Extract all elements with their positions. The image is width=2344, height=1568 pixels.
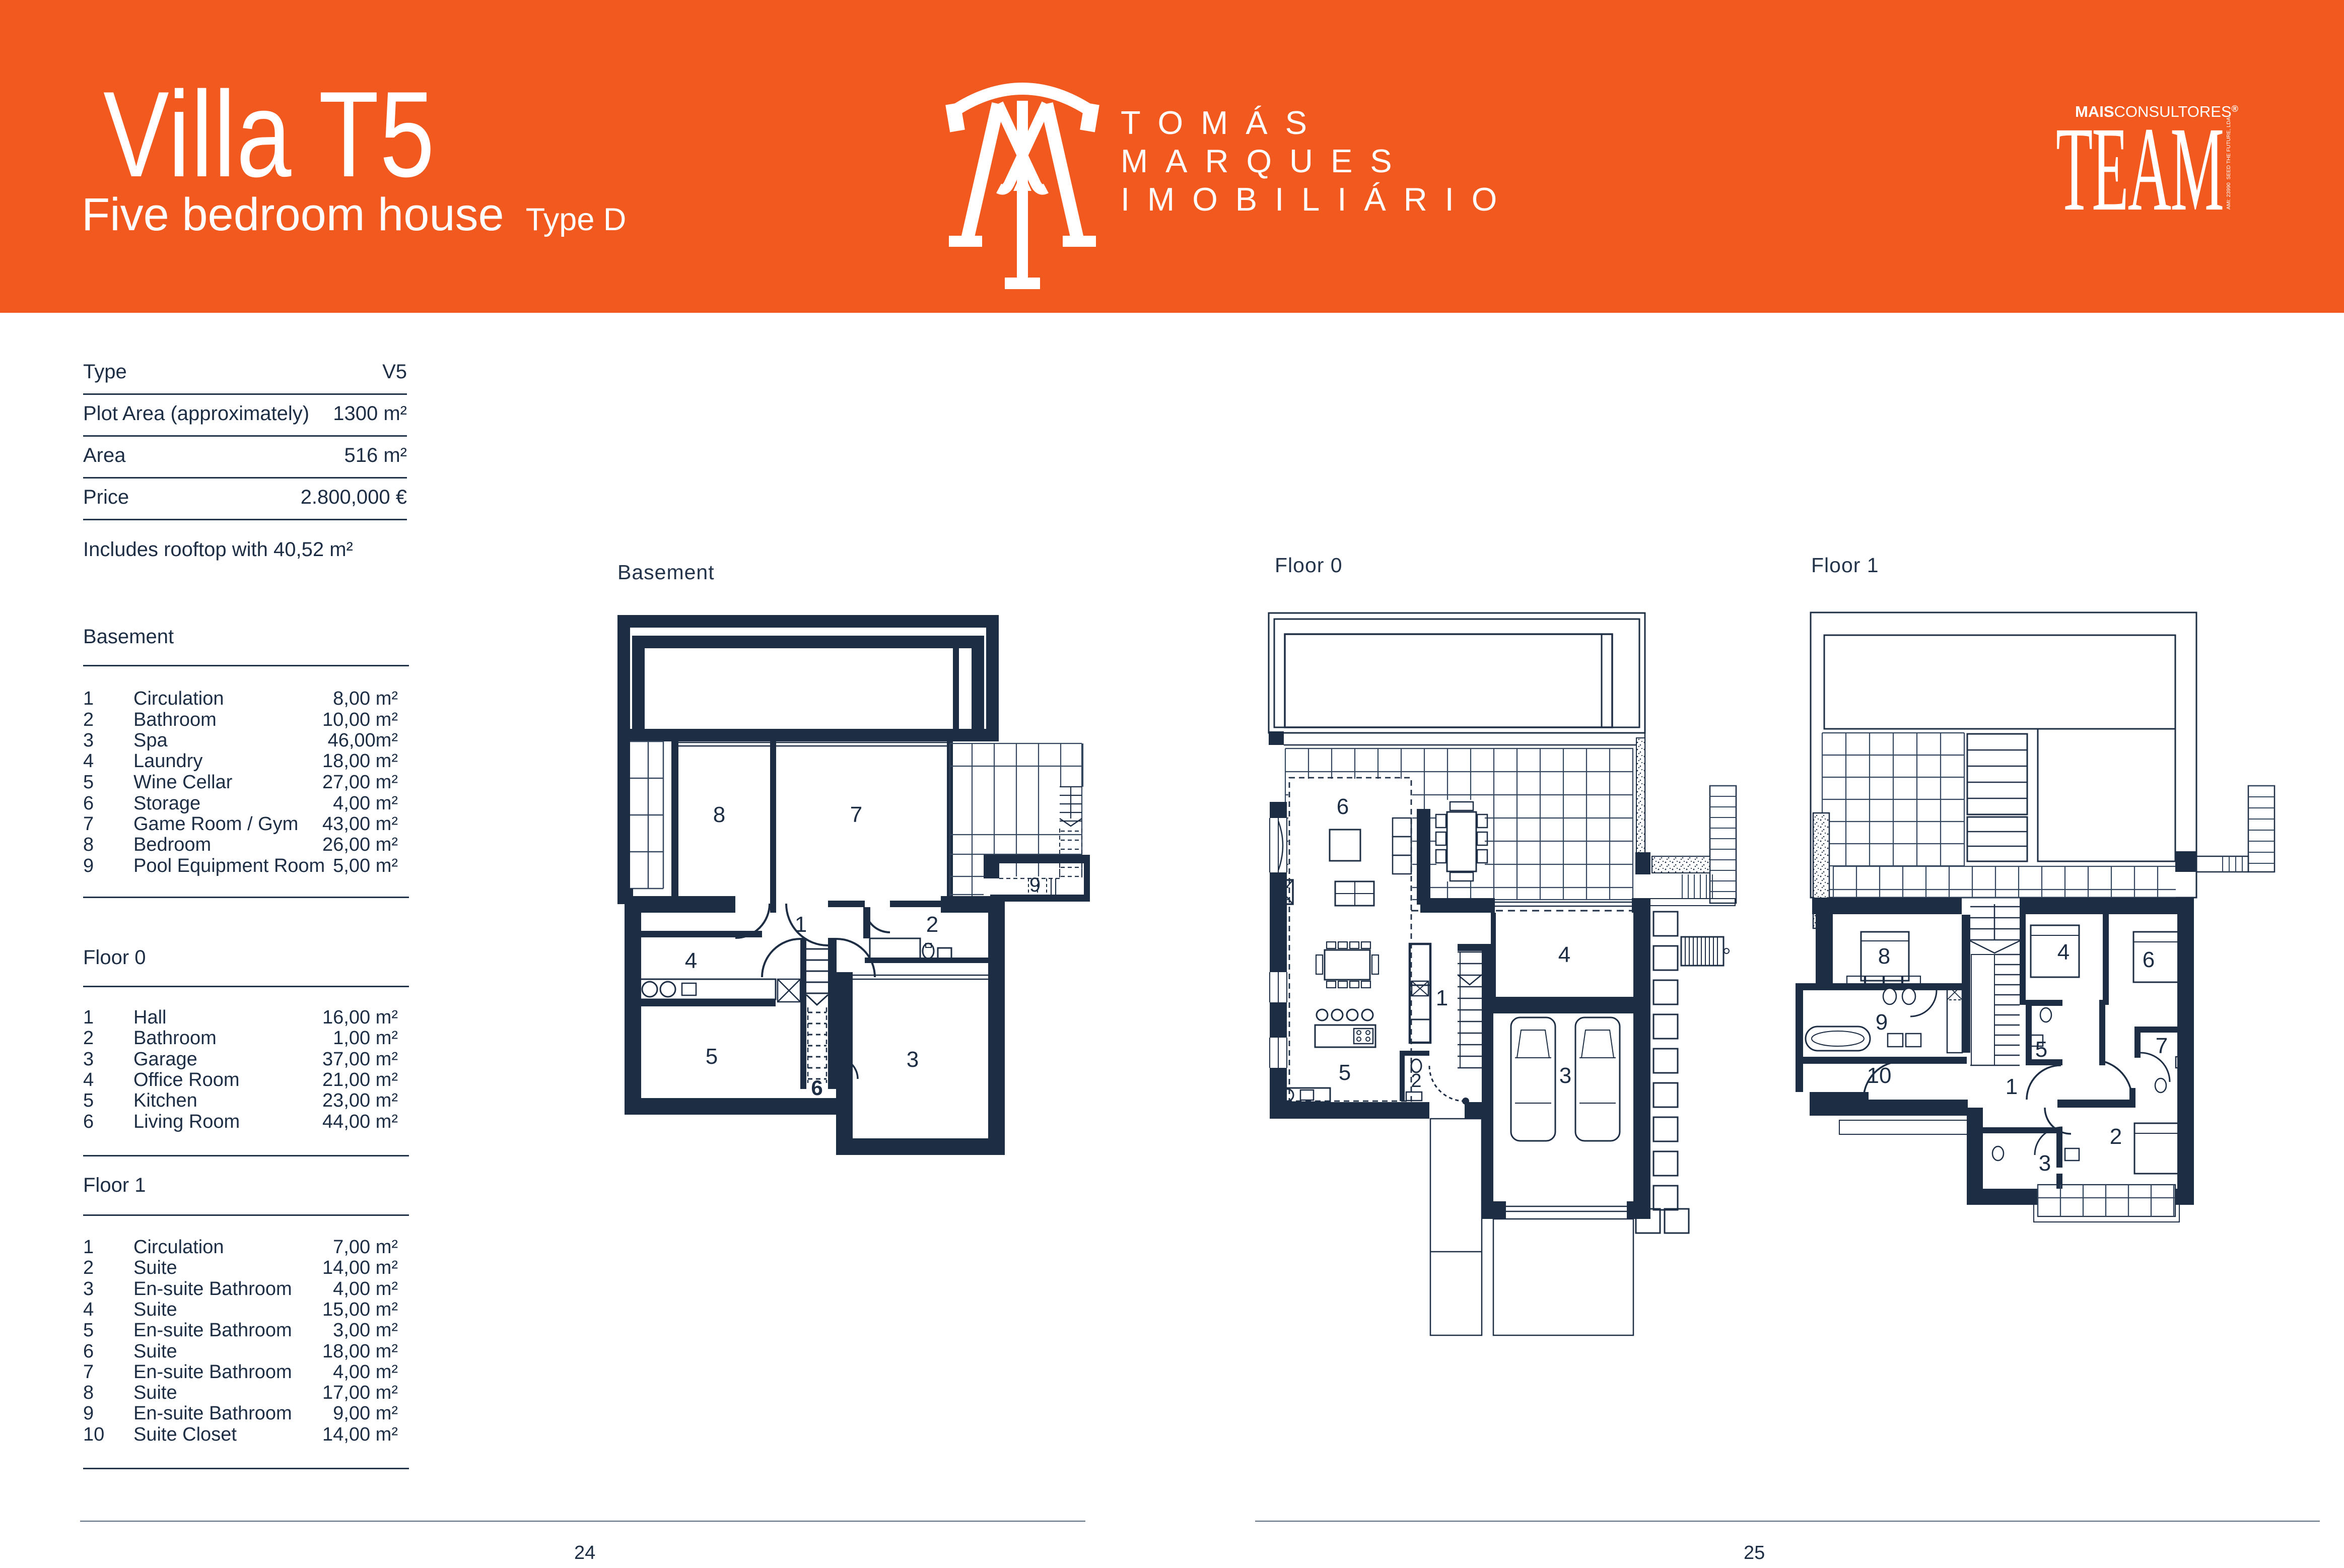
svg-text:4: 4: [685, 948, 697, 973]
svg-text:1: 1: [2006, 1074, 2018, 1099]
svg-text:9: 9: [1876, 1010, 1888, 1035]
svg-text:IMOBILIÁRIO: IMOBILIÁRIO: [1121, 181, 1514, 218]
svg-text:TOMÁS: TOMÁS: [1121, 104, 1325, 141]
svg-text:5: 5: [706, 1044, 718, 1069]
svg-text:6: 6: [2143, 947, 2155, 972]
svg-text:MARQUES: MARQUES: [1121, 143, 1410, 179]
svg-text:2: 2: [926, 912, 938, 937]
svg-text:3: 3: [1559, 1063, 1571, 1088]
svg-text:2: 2: [2110, 1124, 2122, 1149]
svg-text:TEAM: TEAM: [2056, 102, 2223, 236]
svg-text:AMI: 23990 SEED THE FUTURE, L: AMI: 23990 SEED THE FUTURE, LDA.: [2226, 115, 2232, 210]
svg-text:3: 3: [907, 1047, 919, 1072]
svg-text:6: 6: [1337, 794, 1349, 819]
svg-text:5: 5: [2035, 1037, 2047, 1062]
svg-text:10: 10: [1867, 1063, 1892, 1088]
svg-text:1: 1: [795, 912, 807, 937]
svg-text:5: 5: [1339, 1060, 1351, 1085]
svg-text:9: 9: [1029, 874, 1041, 896]
svg-text:4: 4: [2057, 940, 2070, 965]
svg-text:2: 2: [1411, 1070, 1421, 1092]
svg-text:6: 6: [811, 1076, 822, 1100]
svg-text:7: 7: [850, 802, 862, 827]
svg-text:8: 8: [713, 802, 725, 827]
svg-text:4: 4: [1558, 942, 1570, 967]
svg-text:1: 1: [1436, 986, 1448, 1010]
svg-text:7: 7: [2156, 1034, 2168, 1058]
svg-text:8: 8: [1878, 944, 1890, 969]
svg-text:3: 3: [2039, 1151, 2051, 1176]
